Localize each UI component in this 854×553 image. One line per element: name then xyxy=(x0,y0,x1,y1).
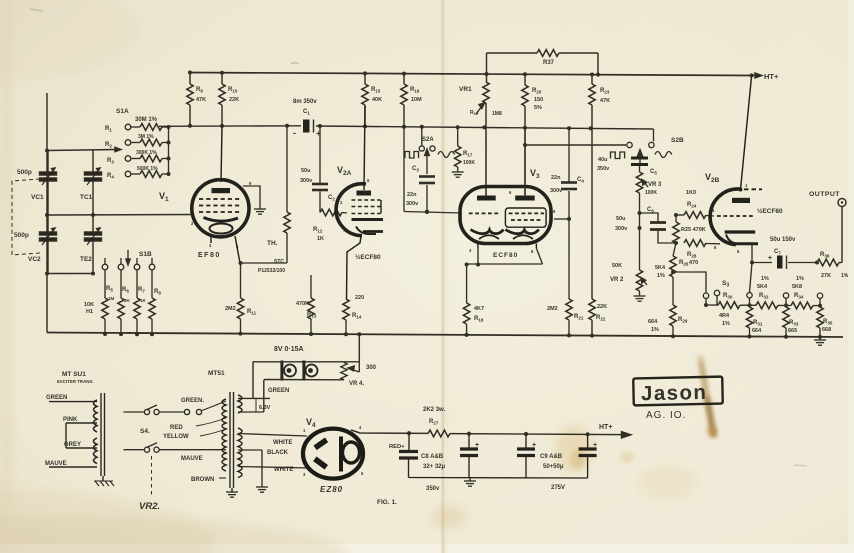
svg-text:S2B: S2B xyxy=(671,137,684,144)
svg-text:50u 150v: 50u 150v xyxy=(770,237,796,243)
svg-text:664: 664 xyxy=(752,328,762,334)
svg-text:1K0: 1K0 xyxy=(686,190,696,196)
svg-text:R29: R29 xyxy=(678,317,688,324)
svg-text:R27: R27 xyxy=(429,419,439,426)
svg-text:+: + xyxy=(593,442,597,449)
svg-text:R2: R2 xyxy=(105,142,112,149)
svg-text:R23: R23 xyxy=(600,88,610,95)
svg-text:664: 664 xyxy=(648,319,658,325)
svg-text:8m 350v: 8m 350v xyxy=(293,99,317,105)
svg-text:-: - xyxy=(293,128,296,138)
svg-text:R18: R18 xyxy=(474,316,484,323)
svg-text:MT SU1: MT SU1 xyxy=(62,371,86,378)
svg-text:350v: 350v xyxy=(597,166,610,172)
svg-text:EXCITER TRANS.: EXCITER TRANS. xyxy=(57,379,94,384)
svg-text:40u: 40u xyxy=(598,157,607,163)
svg-text:VR2.: VR2. xyxy=(139,501,160,512)
svg-text:R35: R35 xyxy=(823,319,833,326)
svg-text:WHITE: WHITE xyxy=(273,440,292,446)
svg-text:R31: R31 xyxy=(753,320,763,327)
svg-text:1%: 1% xyxy=(722,321,730,327)
svg-text:H1: H1 xyxy=(86,309,93,315)
svg-text:C1: C1 xyxy=(303,109,310,116)
svg-text:1%: 1% xyxy=(651,327,659,333)
svg-text:47K: 47K xyxy=(600,98,610,104)
svg-text:R19: R19 xyxy=(470,110,479,116)
svg-text:300v: 300v xyxy=(615,226,628,232)
svg-text:275V: 275V xyxy=(551,485,565,491)
svg-text:470K: 470K xyxy=(296,301,309,307)
svg-text:300v: 300v xyxy=(550,188,563,194)
svg-text:6.3V: 6.3V xyxy=(259,405,271,411)
svg-text:1K: 1K xyxy=(140,298,147,303)
svg-text:2K: 2K xyxy=(124,298,131,303)
svg-text:RED+: RED+ xyxy=(389,444,405,450)
svg-text:10M: 10M xyxy=(411,97,422,103)
svg-text:R26: R26 xyxy=(679,260,689,267)
svg-text:300K 1%: 300K 1% xyxy=(136,150,157,156)
svg-text:5K4: 5K4 xyxy=(655,265,666,271)
svg-text:VR 2: VR 2 xyxy=(610,277,624,283)
svg-text:VR 4.: VR 4. xyxy=(349,381,364,387)
svg-text:R21: R21 xyxy=(574,314,584,321)
svg-text:RED: RED xyxy=(170,425,183,431)
svg-text:+: + xyxy=(768,255,772,262)
svg-text:HT+: HT+ xyxy=(599,424,612,431)
svg-text:S1A: S1A xyxy=(116,108,129,115)
svg-text:R14: R14 xyxy=(352,313,362,320)
svg-text:R28: R28 xyxy=(687,252,697,259)
svg-text:MAUVE: MAUVE xyxy=(181,456,203,462)
svg-text:2M2: 2M2 xyxy=(225,306,236,312)
svg-text:R30: R30 xyxy=(723,293,733,300)
svg-text:1%: 1% xyxy=(841,273,849,279)
svg-text:150: 150 xyxy=(534,97,543,103)
svg-text:R5: R5 xyxy=(106,286,113,293)
svg-text:OUTPUT: OUTPUT xyxy=(809,191,840,198)
svg-text:50u: 50u xyxy=(301,168,310,174)
svg-text:R1: R1 xyxy=(105,126,112,133)
svg-text:47K: 47K xyxy=(196,97,206,103)
svg-text:½ECF80: ½ECF80 xyxy=(355,253,381,261)
svg-text:R20: R20 xyxy=(532,88,542,95)
svg-text:PINK: PINK xyxy=(63,417,78,423)
svg-text:5K8: 5K8 xyxy=(792,284,802,290)
svg-text:TC1: TC1 xyxy=(80,194,93,201)
svg-text:R3: R3 xyxy=(107,158,114,165)
svg-text:22n: 22n xyxy=(407,192,417,198)
svg-text:R13: R13 xyxy=(307,312,317,319)
svg-text:500p: 500p xyxy=(17,169,32,176)
svg-text:R12: R12 xyxy=(313,227,323,234)
svg-text:2M2: 2M2 xyxy=(547,306,558,312)
svg-text:470: 470 xyxy=(689,260,698,266)
svg-text:+: + xyxy=(475,442,479,449)
svg-text:R6: R6 xyxy=(122,287,129,294)
svg-text:C5: C5 xyxy=(650,169,657,176)
svg-text:R4: R4 xyxy=(107,173,114,180)
svg-text:5K4: 5K4 xyxy=(757,284,768,290)
svg-text:R33: R33 xyxy=(789,320,799,327)
svg-text:1K: 1K xyxy=(317,236,324,242)
svg-text:665: 665 xyxy=(788,328,797,334)
svg-text:10K: 10K xyxy=(84,302,94,308)
svg-text:1%: 1% xyxy=(657,273,665,279)
svg-text:3M 1%: 3M 1% xyxy=(138,134,154,140)
svg-text:MAUVE: MAUVE xyxy=(45,461,67,467)
svg-text:8V 0·15A: 8V 0·15A xyxy=(274,346,304,353)
svg-text:½ECF80: ½ECF80 xyxy=(757,207,783,215)
svg-text:S4.: S4. xyxy=(140,428,150,435)
svg-text:R36: R36 xyxy=(820,252,830,259)
svg-text:300: 300 xyxy=(366,365,377,371)
svg-text:350v: 350v xyxy=(426,486,440,492)
svg-text:300v: 300v xyxy=(406,201,419,207)
svg-text:HT+: HT+ xyxy=(764,72,779,81)
svg-text:1M8: 1M8 xyxy=(492,111,502,117)
svg-text:EF80: EF80 xyxy=(198,252,221,259)
svg-text:50u: 50u xyxy=(616,216,625,222)
svg-text:R11: R11 xyxy=(247,309,257,316)
svg-text:300v: 300v xyxy=(300,178,313,184)
svg-text:R8: R8 xyxy=(154,289,161,296)
svg-text:S1B: S1B xyxy=(139,251,152,258)
svg-text:STC: STC xyxy=(274,259,284,265)
svg-text:2K2 3w.: 2K2 3w. xyxy=(423,407,445,413)
svg-text:C4: C4 xyxy=(577,177,584,184)
svg-text:Jason: Jason xyxy=(641,381,708,405)
svg-text:R15: R15 xyxy=(371,87,381,94)
svg-text:R16: R16 xyxy=(410,87,420,94)
svg-text:C7: C7 xyxy=(774,249,781,256)
svg-text:R17: R17 xyxy=(463,151,473,158)
svg-text:GREEN: GREEN xyxy=(268,388,289,394)
svg-text:AG. IO.: AG. IO. xyxy=(646,410,686,421)
svg-text:C6: C6 xyxy=(647,207,654,214)
svg-text:YELLOW: YELLOW xyxy=(163,434,189,440)
svg-text:TH.: TH. xyxy=(267,240,278,247)
svg-text:ECF80: ECF80 xyxy=(493,252,518,259)
svg-text:R37: R37 xyxy=(543,60,555,66)
svg-text:40K: 40K xyxy=(372,97,382,103)
svg-text:220: 220 xyxy=(355,295,364,301)
svg-text:5%: 5% xyxy=(534,105,542,111)
svg-text:22n: 22n xyxy=(551,175,561,181)
svg-text:C2: C2 xyxy=(328,195,335,202)
svg-text:R32: R32 xyxy=(759,293,769,300)
svg-text:4R4: 4R4 xyxy=(719,313,730,319)
svg-text:1M: 1M xyxy=(108,296,115,301)
svg-text:1%: 1% xyxy=(796,276,804,282)
svg-text:100K: 100K xyxy=(645,190,657,196)
svg-text:FIG. 1.: FIG. 1. xyxy=(377,499,397,506)
svg-text:TE2: TE2 xyxy=(80,256,92,263)
svg-text:BROWN: BROWN xyxy=(191,477,214,483)
svg-text:R34: R34 xyxy=(794,293,804,300)
svg-text:VR 3: VR 3 xyxy=(648,182,662,188)
svg-text:4K7: 4K7 xyxy=(474,306,484,312)
svg-text:32+ 32μ: 32+ 32μ xyxy=(423,464,446,470)
svg-text:MT51: MT51 xyxy=(208,370,225,377)
svg-text:GREEN: GREEN xyxy=(46,395,67,401)
svg-text:C9 A&B: C9 A&B xyxy=(540,454,563,460)
svg-text:R25 470K: R25 470K xyxy=(681,227,706,233)
svg-text:S2A: S2A xyxy=(422,137,434,143)
svg-text:C8 A&B: C8 A&B xyxy=(421,454,444,460)
svg-text:500p: 500p xyxy=(14,232,29,239)
svg-text:668: 668 xyxy=(822,327,831,333)
svg-text:500K 1%: 500K 1% xyxy=(137,166,158,172)
svg-text:30M 1%: 30M 1% xyxy=(135,117,158,123)
svg-text:22K: 22K xyxy=(229,97,239,103)
svg-text:+: + xyxy=(532,442,536,449)
svg-text:50K: 50K xyxy=(612,263,622,269)
svg-text:R7: R7 xyxy=(138,287,145,294)
svg-text:27K: 27K xyxy=(821,273,831,279)
svg-text:R9: R9 xyxy=(196,87,203,94)
svg-text:VC2: VC2 xyxy=(28,256,41,263)
svg-text:R22: R22 xyxy=(596,315,606,322)
svg-text:WHITE: WHITE xyxy=(274,467,293,473)
svg-text:EZ80: EZ80 xyxy=(320,485,343,494)
svg-text:1%: 1% xyxy=(761,276,769,282)
svg-text:100K: 100K xyxy=(463,160,475,166)
svg-text:C3: C3 xyxy=(412,166,419,173)
svg-text:P12532/100: P12532/100 xyxy=(258,268,285,274)
svg-text:R24: R24 xyxy=(687,202,697,209)
svg-text:VC1: VC1 xyxy=(31,194,44,201)
svg-text:VR1: VR1 xyxy=(459,86,472,93)
svg-text:50+50μ: 50+50μ xyxy=(543,464,564,470)
svg-text:22K: 22K xyxy=(597,304,607,310)
svg-text:BLACK: BLACK xyxy=(267,450,289,456)
svg-text:R10: R10 xyxy=(228,87,238,94)
svg-text:GREY: GREY xyxy=(64,442,81,448)
svg-text:GREEN.: GREEN. xyxy=(181,398,204,404)
